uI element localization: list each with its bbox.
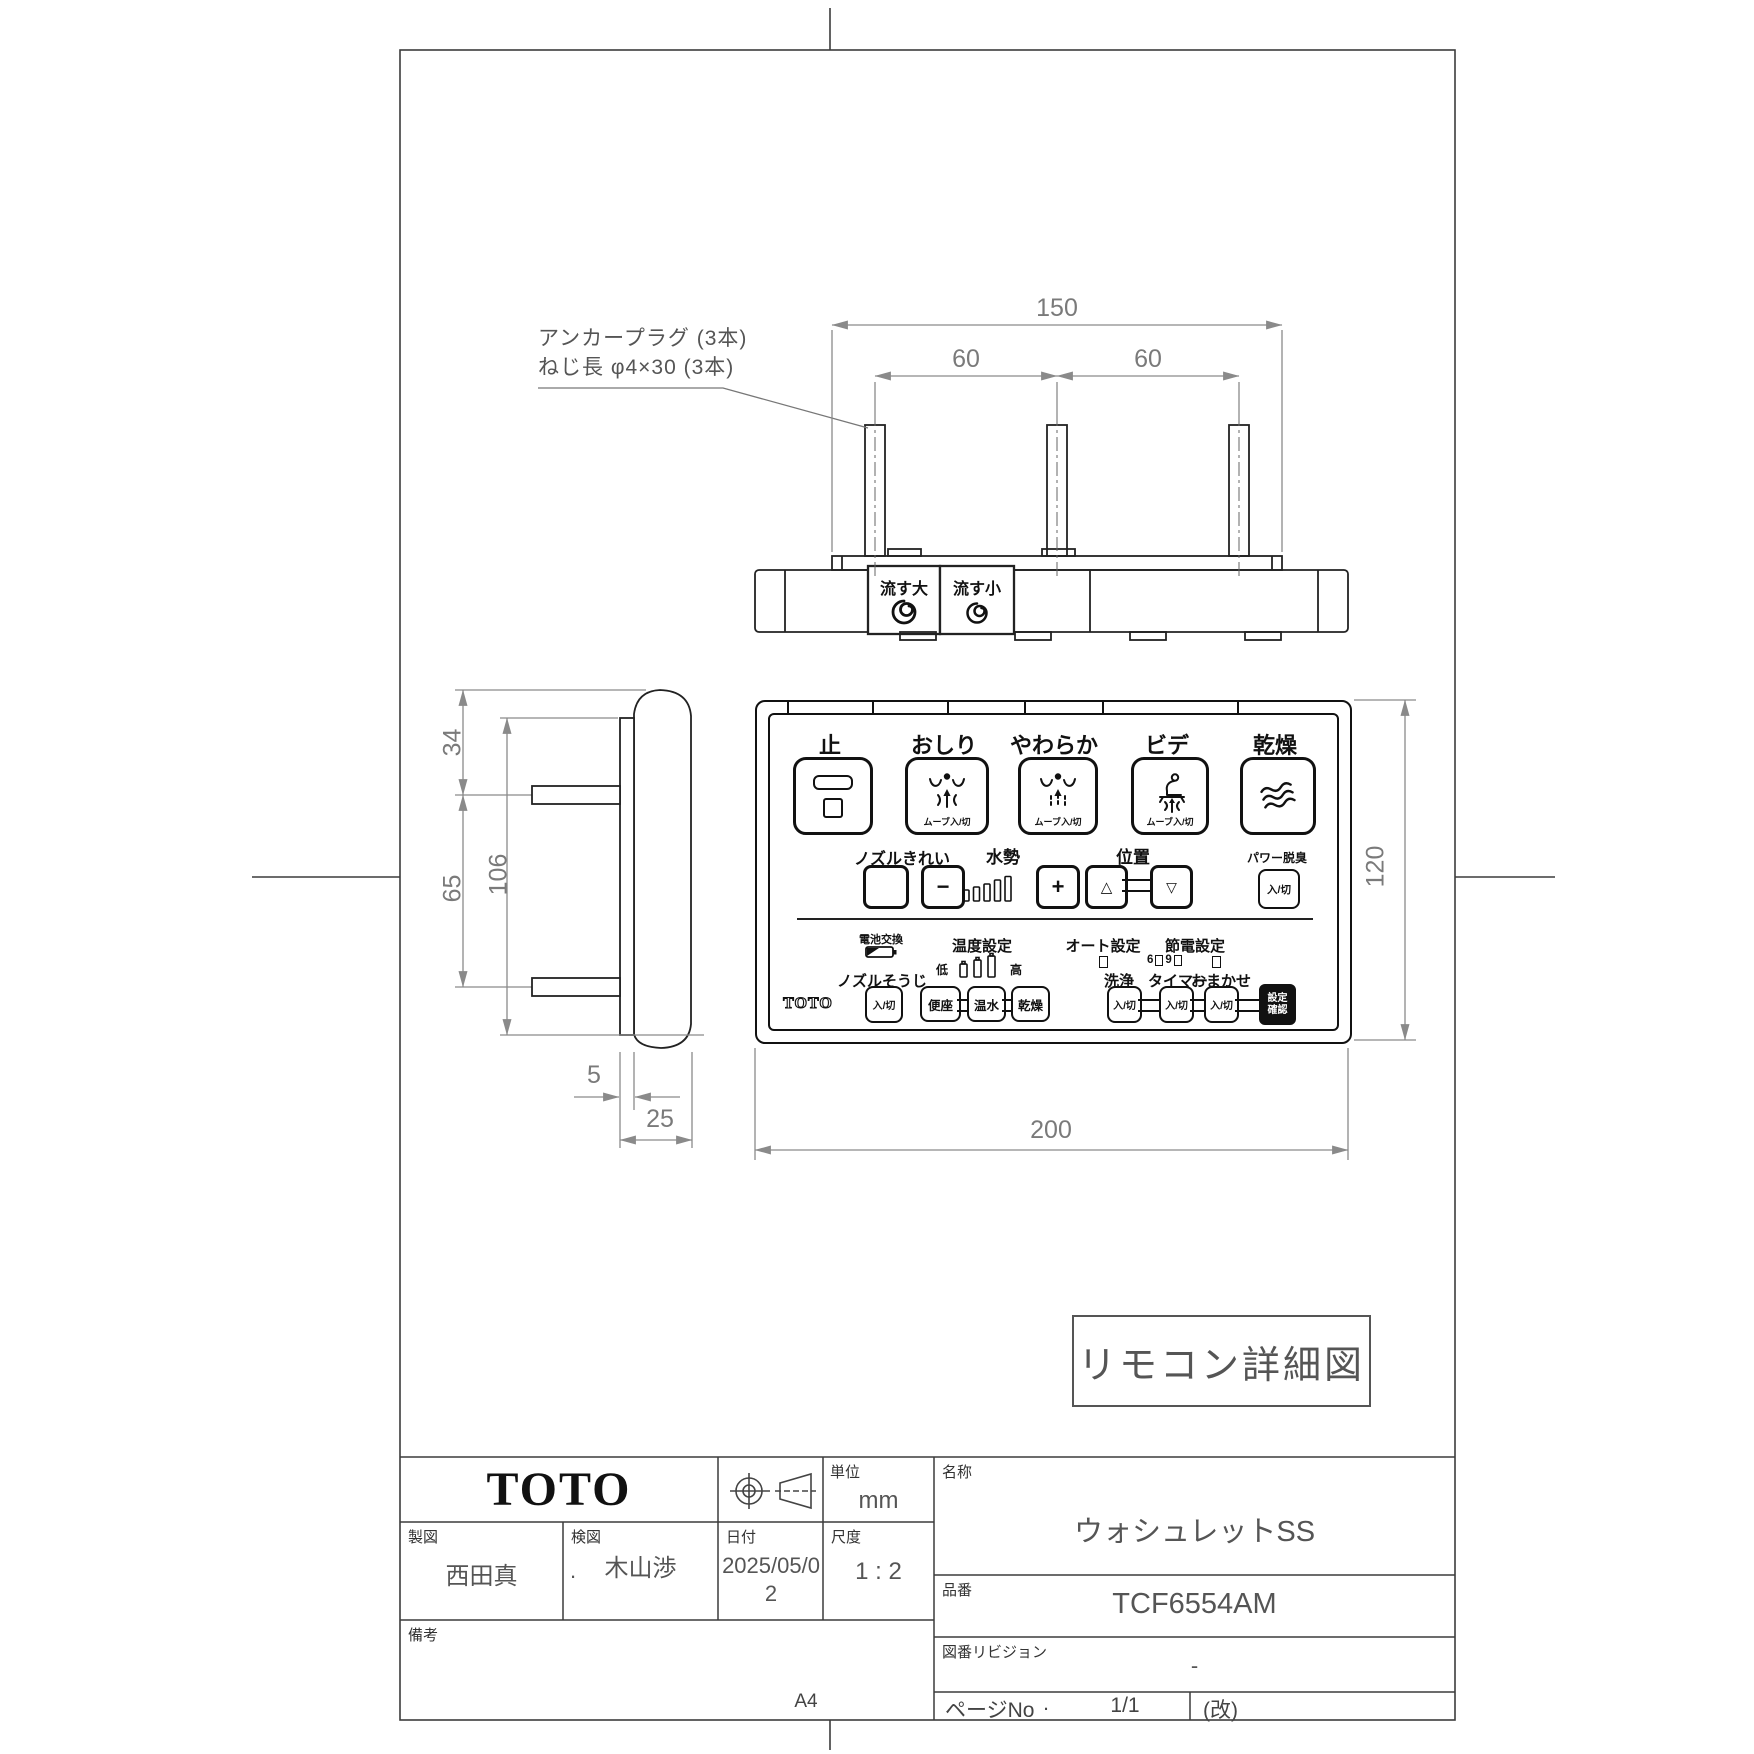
drafter-label: 製図 <box>408 1526 438 1547</box>
dim-25: 25 <box>630 1105 690 1134</box>
flush-unit <box>755 570 1348 632</box>
page-label: ページNo <box>945 1694 1045 1724</box>
anchor-plug-note: アンカープラグ (3本) ねじ長 φ4×30 (3本) <box>538 324 747 382</box>
part-number: TCF6554AM <box>934 1588 1455 1621</box>
bide-person-icon <box>1148 772 1192 814</box>
paper-size: A4 <box>786 1691 826 1713</box>
temp-level-indicator <box>957 952 1003 980</box>
flush-big-swirl-icon <box>887 596 921 628</box>
bide-move-label: ムーブ入/切 <box>1134 815 1206 828</box>
anchor-plug-note-line2: ねじ長 φ4×30 (3本) <box>538 353 747 382</box>
dim-65: 65 <box>439 858 468 920</box>
dim-200: 200 <box>1001 1116 1101 1145</box>
name-label: 名称 <box>942 1461 972 1482</box>
drawing-title-stamp: リモコン詳細図 <box>1072 1315 1371 1407</box>
side-view <box>532 690 691 1048</box>
stop-pill-icon <box>813 775 853 790</box>
dim-34: 34 <box>439 712 468 774</box>
dim-60-right: 60 <box>1098 345 1198 374</box>
eco-timer-indicator: 6 9 <box>1147 954 1182 966</box>
position-down-button: ▽ <box>1150 865 1193 909</box>
deodorizer-onoff-button: 入/切 <box>1258 869 1300 909</box>
battery-icon <box>865 945 897 959</box>
oshiri-label: おしり <box>905 728 983 760</box>
product-name: ウォシュレットSS <box>934 1508 1455 1550</box>
revision-value: - <box>934 1653 1455 1679</box>
temp-high-label: 高 <box>1007 961 1025 978</box>
bide-button: ムーブ入/切 <box>1131 757 1209 835</box>
remote-toto-logo: TOTO <box>775 995 841 1013</box>
oshiri-button: ムーブ入/切 <box>905 757 989 835</box>
confirm-line2: 確認 <box>1268 1005 1288 1017</box>
page-dot: . <box>1040 1692 1052 1716</box>
oshiri-spray-icon <box>925 772 969 812</box>
drafter-name: 西田真 <box>400 1556 563 1591</box>
dim-60-left: 60 <box>916 345 1016 374</box>
date-value: 2025/05/02 <box>722 1552 820 1607</box>
kai-value: (改) <box>1203 1694 1263 1724</box>
yawaraka-label: やわらか <box>1003 728 1105 760</box>
position-link <box>1122 879 1150 892</box>
wall-plate-profile <box>620 718 634 1035</box>
screw-profile <box>532 978 620 996</box>
timer-onoff-button: 入/切 <box>1159 986 1194 1023</box>
projection-symbol-icon <box>728 1468 818 1514</box>
stop-square-icon <box>823 798 843 818</box>
bide-label: ビデ <box>1131 728 1203 760</box>
setting-confirm-button: 設定 確認 <box>1259 984 1296 1025</box>
scale-value: 1 : 2 <box>823 1558 934 1586</box>
wash-onoff-button: 入/切 <box>1107 986 1142 1023</box>
seat-button: 便座 <box>920 986 961 1022</box>
temp-link <box>1002 999 1011 1012</box>
oshiri-move-label: ムーブ入/切 <box>908 815 986 828</box>
yawaraka-spray-icon <box>1036 772 1080 812</box>
dim-5: 5 <box>574 1061 614 1090</box>
confirm-link <box>1235 999 1259 1012</box>
dim-150: 150 <box>1007 294 1107 323</box>
temp-link <box>957 999 967 1012</box>
yawaraka-button: ムーブ入/切 <box>1018 757 1098 835</box>
toto-logo: TOTO <box>400 1462 718 1517</box>
date-label: 日付 <box>726 1526 756 1547</box>
dim-120: 120 <box>1362 836 1391 898</box>
screw-profile <box>532 786 620 804</box>
page-value: 1/1 <box>1095 1694 1155 1718</box>
eco-six-label: 6 <box>1147 954 1153 966</box>
eco-indicator-box <box>1155 955 1163 966</box>
panel-separator <box>797 918 1313 920</box>
flush-small-swirl-icon <box>963 599 991 627</box>
eco-nine-label: 9 <box>1165 954 1171 966</box>
kanso-air-icon <box>1258 778 1298 814</box>
unit-label: 単位 <box>830 1461 860 1482</box>
anchor-plug-note-line1: アンカープラグ (3本) <box>538 324 747 353</box>
confirm-line1: 設定 <box>1268 993 1288 1005</box>
flush-small-label: 流す小 <box>940 575 1014 599</box>
water-level-indicator <box>962 861 1016 903</box>
drawing-sheet: アンカープラグ (3本) ねじ長 φ4×30 (3本) 150 60 60 34… <box>0 0 1754 1754</box>
eco-indicator-box <box>1174 955 1182 966</box>
kanso-button <box>1240 757 1316 835</box>
checker-label: 検図 <box>571 1526 601 1547</box>
remote-body-profile <box>634 690 691 1048</box>
scale-label: 尺度 <box>831 1526 861 1547</box>
water-plus-button: + <box>1036 865 1080 909</box>
top-view <box>755 425 1348 640</box>
kanso-label: 乾燥 <box>1240 728 1310 760</box>
stop-button <box>793 757 873 835</box>
deodorizer-label: パワー脱臭 <box>1244 849 1310 866</box>
yawaraka-move-label: ムーブ入/切 <box>1021 815 1095 828</box>
eco-setting-label: 節電設定 <box>1155 935 1235 956</box>
warm-water-button: 温水 <box>967 986 1006 1022</box>
water-minus-button: − <box>921 865 965 909</box>
checker-dot: . <box>568 1558 578 1584</box>
omakase-indicator <box>1212 956 1221 968</box>
auto-indicator <box>1099 956 1108 968</box>
checker-name: 木山渉 <box>563 1548 718 1583</box>
omakase-onoff-button: 入/切 <box>1204 986 1239 1023</box>
dim-106: 106 <box>485 840 514 910</box>
dry-button: 乾燥 <box>1011 986 1050 1022</box>
auto-setting-label: オート設定 <box>1061 935 1145 956</box>
eco-link <box>1138 999 1159 1012</box>
notes-label: 備考 <box>408 1624 438 1645</box>
unit-value: mm <box>823 1487 934 1515</box>
nozzle-clean-button <box>863 865 909 909</box>
eco-link <box>1190 999 1204 1012</box>
remote-front-view: 止 おしり やわらか ビデ 乾燥 ムーブ入/切 <box>755 700 1352 1044</box>
nozzle-wash-onoff-button: 入/切 <box>865 986 903 1023</box>
stop-label: 止 <box>793 728 867 760</box>
